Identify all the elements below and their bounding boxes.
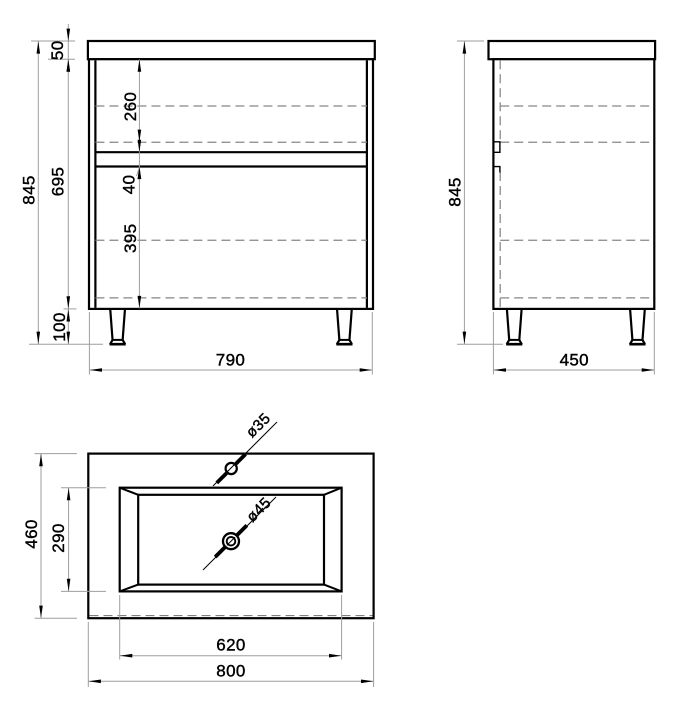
svg-text:290: 290	[49, 523, 68, 552]
svg-text:100: 100	[50, 312, 69, 341]
svg-text:260: 260	[121, 92, 140, 121]
svg-text:460: 460	[22, 519, 41, 548]
svg-text:40: 40	[119, 175, 138, 195]
svg-text:845: 845	[20, 175, 39, 204]
svg-text:695: 695	[49, 167, 68, 196]
svg-text:800: 800	[216, 661, 245, 680]
svg-text:50: 50	[48, 40, 67, 60]
svg-text:845: 845	[446, 177, 465, 206]
svg-text:620: 620	[216, 636, 245, 655]
svg-text:395: 395	[121, 224, 140, 253]
svg-text:790: 790	[216, 351, 245, 370]
svg-text:450: 450	[560, 351, 589, 370]
